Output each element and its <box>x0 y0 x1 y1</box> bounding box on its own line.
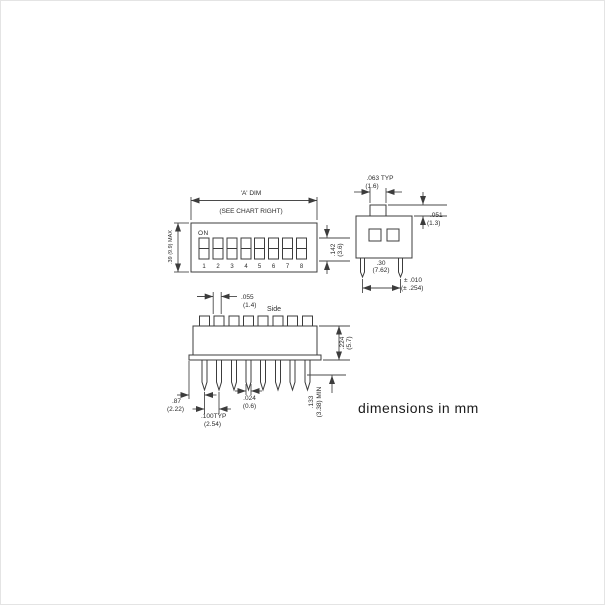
body-height-inch: .224 <box>339 336 346 349</box>
tab-width-inch: .055 <box>241 294 254 301</box>
actuator-width-mm: (1.6) <box>365 183 378 190</box>
rocker-window <box>387 229 399 241</box>
units-note: dimensions in mm <box>358 400 479 416</box>
pins-side-view <box>202 360 310 390</box>
actuator-tab <box>229 316 239 326</box>
actuator-tab <box>258 316 268 326</box>
actuator-height-inch: .051 <box>430 212 443 219</box>
edge-to-pin-mm: (2.22) <box>167 406 184 413</box>
max-height-dim: .39 (9.9) MAX <box>168 230 174 264</box>
actuator-tab <box>200 316 210 326</box>
pin-pitch-inch: .100TYP <box>201 413 226 420</box>
side-view-label: Side <box>267 306 281 313</box>
actuator-height-mm: (1.3) <box>427 220 440 227</box>
see-chart-note: (SEE CHART RIGHT) <box>219 208 282 215</box>
slot-dim-mm: (3.6) <box>337 243 344 256</box>
pin-length-mm: (3.38) MIN <box>316 386 323 417</box>
pin <box>246 360 251 390</box>
end-view: .063 TYP (1.6) .051 (1.3) .30 (7.62) ± .… <box>354 175 447 293</box>
rocker-window <box>369 229 381 241</box>
pin-width-mm: (0.6) <box>243 403 256 410</box>
side-view: .055 (1.4) Side <box>167 292 353 428</box>
row-spacing-mm: (7.62) <box>373 267 390 274</box>
actuator-tab <box>303 316 313 326</box>
actuator-tab <box>288 316 298 326</box>
pin <box>232 360 237 390</box>
pin-width-inch: .024 <box>243 395 256 402</box>
edge-to-pin-inch: .87 <box>172 398 181 405</box>
on-label: ON <box>198 230 209 237</box>
actuator-tab <box>214 316 224 326</box>
tab-width-mm: (1.4) <box>243 302 256 309</box>
tolerance-inch: ± .010 <box>404 277 422 284</box>
row-spacing-inch: .30 <box>376 260 385 267</box>
actuator-width-inch: .063 TYP <box>367 175 394 182</box>
pin <box>276 360 281 390</box>
pin-length-inch: .133 <box>308 395 315 408</box>
pin-pitch-mm: (2.54) <box>204 421 221 428</box>
actuator-tab <box>273 316 283 326</box>
tolerance-mm: (± .254) <box>401 285 423 292</box>
dip-switch-mechanical-drawing: 'A' DIM (SEE CHART RIGHT) ON 1 2 3 4 5 6… <box>1 1 605 605</box>
dim-a-label: 'A' DIM <box>241 190 262 197</box>
pin <box>261 360 266 390</box>
pin <box>217 360 222 390</box>
pin-end-view <box>399 258 403 277</box>
datasheet-drawing-canvas: 'A' DIM (SEE CHART RIGHT) ON 1 2 3 4 5 6… <box>0 0 605 605</box>
pin <box>202 360 207 390</box>
body-height-mm: (5.7) <box>346 336 353 349</box>
switch-body-side-view <box>193 326 317 355</box>
slot-dim-inch: .142 <box>330 243 337 256</box>
actuator-tabs <box>200 316 313 326</box>
base-lip <box>189 355 321 360</box>
pin-end-view <box>361 258 365 277</box>
top-view: 'A' DIM (SEE CHART RIGHT) ON 1 2 3 4 5 6… <box>168 190 350 274</box>
actuator-tab-end-view <box>370 205 386 216</box>
switch-body-end-view <box>356 216 412 258</box>
actuator-tab <box>244 316 254 326</box>
pin <box>290 360 295 390</box>
